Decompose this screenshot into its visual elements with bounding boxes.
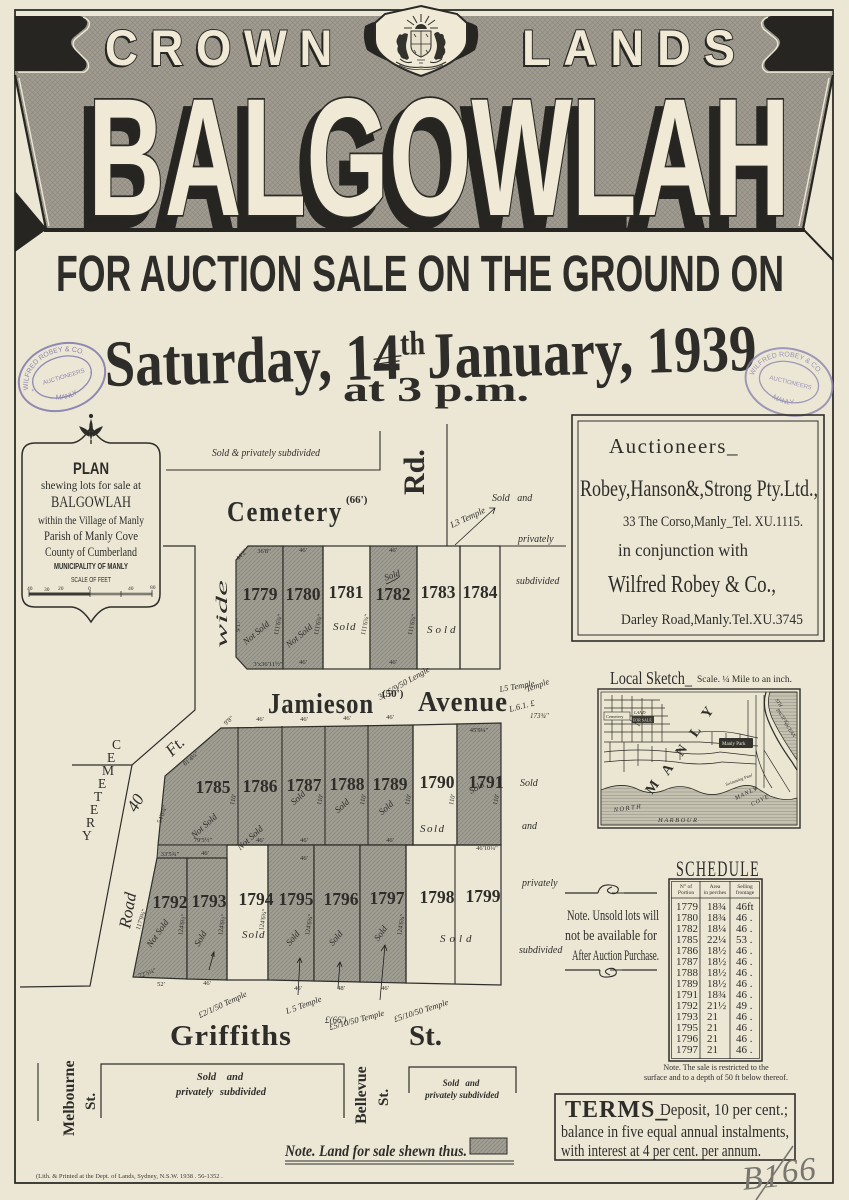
svg-text:Local Sketch_: Local Sketch_ <box>610 668 693 688</box>
svg-text:SCALE OF FEET: SCALE OF FEET <box>71 575 111 584</box>
svg-text:Parish of Manly Cove: Parish of Manly Cove <box>44 529 138 543</box>
svg-text:frontage: frontage <box>736 889 755 896</box>
svg-text:Jamieson: Jamieson <box>268 689 374 720</box>
svg-text:and: and <box>522 821 538 832</box>
svg-text:Manly Park: Manly Park <box>722 742 746 747</box>
svg-text:Robey,Hanson&,Strong Pty.Ltd.,: Robey,Hanson&,Strong Pty.Ltd., <box>580 476 818 501</box>
svg-text:46': 46' <box>343 715 351 722</box>
svg-text:1797: 1797 <box>370 888 405 908</box>
svg-text:1785: 1785 <box>196 777 231 797</box>
svg-text:privately: privately <box>517 534 554 545</box>
svg-text:46 .: 46 . <box>736 1044 753 1056</box>
svg-text:Rd.: Rd. <box>398 449 431 495</box>
svg-text:Scale. ¼ Mile to an inch.: Scale. ¼ Mile to an inch. <box>697 675 792 685</box>
svg-text:privately subdivided: privately subdivided <box>175 1087 267 1098</box>
svg-text:1782: 1782 <box>376 584 411 604</box>
svg-text:1780: 1780 <box>286 584 321 604</box>
svg-text:at 3 p.m.: at 3 p.m. <box>343 370 529 409</box>
svg-text:Wilfred Robey & Co.,: Wilfred Robey & Co., <box>608 572 776 598</box>
svg-text:45'9¼": 45'9¼" <box>470 727 489 734</box>
svg-text:46': 46' <box>381 985 389 992</box>
svg-text:County of Cumberland: County of Cumberland <box>45 545 138 559</box>
svg-text:privately: privately <box>521 878 558 889</box>
svg-text:3'x36'11½": 3'x36'11½" <box>253 661 282 668</box>
svg-text:TERMS_: TERMS_ <box>565 1097 668 1123</box>
svg-text:(66'): (66') <box>346 494 368 506</box>
svg-text:N° of: N° of <box>680 883 692 890</box>
svg-text:Sold and: Sold and <box>443 1078 480 1088</box>
svg-text:Sold: Sold <box>333 621 357 633</box>
svg-text:Darley Road,Manly.Tel.XU.3745: Darley Road,Manly.Tel.XU.3745 <box>621 612 803 628</box>
svg-text:46'10¼": 46'10¼" <box>476 845 498 852</box>
svg-text:173¾": 173¾" <box>530 712 549 720</box>
svg-text:BALGOWLAH: BALGOWLAH <box>88 64 790 251</box>
svg-text:1789: 1789 <box>373 774 408 794</box>
svg-text:1794: 1794 <box>239 889 274 909</box>
svg-text:Note. Unsold lots will: Note. Unsold lots will <box>567 908 659 924</box>
svg-text:wide: wide <box>214 580 231 648</box>
svg-text:Melbourne: Melbourne <box>61 1060 78 1136</box>
svg-text:Sold: Sold <box>520 778 539 789</box>
svg-text:79'5½": 79'5½" <box>194 837 213 844</box>
svg-text:Cemetery: Cemetery <box>606 714 624 719</box>
svg-text:Cemetery: Cemetery <box>227 497 343 528</box>
svg-text:Portion: Portion <box>678 890 694 896</box>
svg-text:40: 40 <box>128 586 134 592</box>
svg-text:46': 46' <box>389 547 397 554</box>
svg-text:1781: 1781 <box>329 582 364 602</box>
svg-text:shewing lots for sale at: shewing lots for sale at <box>41 480 142 492</box>
svg-text:with interest at 4 per cent. p: with interest at 4 per cent. per annum. <box>561 1141 761 1160</box>
svg-text:46': 46' <box>300 855 308 862</box>
svg-text:SCHEDULE: SCHEDULE <box>676 856 760 881</box>
svg-text:0: 0 <box>88 586 91 592</box>
svg-text:46': 46' <box>300 837 308 844</box>
svg-text:Sold: Sold <box>440 933 476 945</box>
svg-text:1792: 1792 <box>153 892 188 912</box>
svg-text:46': 46' <box>203 980 211 987</box>
svg-text:within the Village of Manly: within the Village of Manly <box>38 515 144 527</box>
svg-text:1799: 1799 <box>466 886 501 906</box>
svg-text:33 The Corso,Manly_Tel. XU.111: 33 The Corso,Manly_Tel. XU.1115. <box>623 514 803 530</box>
svg-text:46': 46' <box>294 985 302 992</box>
svg-text:MUNICIPALITY OF MANLY: MUNICIPALITY OF MANLY <box>54 562 128 571</box>
svg-text:Griffiths: Griffiths <box>170 1020 292 1052</box>
svg-text:80: 80 <box>150 585 156 591</box>
svg-text:in perches: in perches <box>704 890 726 896</box>
svg-text:1786: 1786 <box>243 776 278 796</box>
svg-text:1793: 1793 <box>192 891 227 911</box>
svg-text:46': 46' <box>256 716 264 723</box>
svg-text:in conjunction with: in conjunction with <box>618 540 748 560</box>
svg-text:46': 46' <box>299 547 307 554</box>
svg-text:After Auction Purchase.: After Auction Purchase. <box>572 948 659 964</box>
svg-text:Sold: Sold <box>420 823 446 835</box>
svg-text:46': 46' <box>256 837 264 844</box>
svg-text:St.: St. <box>376 1089 392 1106</box>
svg-text:BALGOWLAH: BALGOWLAH <box>51 494 131 511</box>
svg-text:46': 46' <box>389 659 397 666</box>
svg-text:St.: St. <box>83 1093 99 1110</box>
svg-text:Sold & privately subdivided: Sold & privately subdivided <box>212 448 321 459</box>
svg-text:LAND: LAND <box>633 710 646 715</box>
svg-text:1797: 1797 <box>676 1044 699 1056</box>
svg-text:46': 46' <box>386 714 394 721</box>
svg-text:balance in five equal annual i: balance in five equal annual instalments… <box>561 1122 789 1141</box>
svg-text:Auctioneers_: Auctioneers_ <box>609 434 739 458</box>
svg-text:HARBOUR: HARBOUR <box>657 817 698 824</box>
svg-text:21: 21 <box>707 1044 718 1056</box>
svg-text:30: 30 <box>44 587 50 593</box>
svg-text:not be available for: not be available for <box>565 928 657 944</box>
svg-text:privately subdivided: privately subdivided <box>424 1090 499 1100</box>
svg-text:1790: 1790 <box>420 772 455 792</box>
svg-text:1787: 1787 <box>287 775 322 795</box>
svg-text:Avenue: Avenue <box>418 687 508 718</box>
svg-text:46': 46' <box>201 850 209 857</box>
svg-text:1784: 1784 <box>463 582 498 602</box>
svg-text:Y: Y <box>82 828 92 843</box>
svg-text:PLAN: PLAN <box>73 459 109 478</box>
svg-text:46': 46' <box>300 716 308 723</box>
svg-text:FOR SALE: FOR SALE <box>633 718 652 723</box>
svg-text:Bellevue: Bellevue <box>353 1066 370 1124</box>
svg-text:9'17": 9'17" <box>235 618 242 632</box>
svg-text:Note. The sale is restricted t: Note. The sale is restricted to the <box>663 1063 769 1072</box>
svg-text:46': 46' <box>386 837 394 844</box>
svg-text:FOR AUCTION SALE ON THE GROUND: FOR AUCTION SALE ON THE GROUND ON <box>56 246 784 303</box>
svg-text:Deposit, 10 per cent.;: Deposit, 10 per cent.; <box>660 1100 788 1119</box>
svg-text:subdivided: subdivided <box>519 945 563 956</box>
svg-text:1798: 1798 <box>420 887 455 907</box>
svg-text:1788: 1788 <box>330 774 365 794</box>
svg-text:subdivided: subdivided <box>516 576 560 587</box>
svg-text:surface and to a depth of 50 f: surface and to a depth of 50 ft below th… <box>644 1073 788 1082</box>
svg-text:36'8": 36'8" <box>257 548 271 555</box>
svg-text:1783: 1783 <box>421 582 456 602</box>
svg-text:£(66'): £(66') <box>325 1015 346 1025</box>
svg-text:52': 52' <box>157 981 165 988</box>
svg-text:1795: 1795 <box>279 889 314 909</box>
svg-text:Sold and: Sold and <box>197 1072 244 1083</box>
svg-text:Sold: Sold <box>427 624 459 636</box>
svg-text:48': 48' <box>337 985 345 992</box>
svg-text:40: 40 <box>27 586 33 592</box>
svg-text:46': 46' <box>299 659 307 666</box>
svg-text:Note. Land for sale shewn thus: Note. Land for sale shewn thus. <box>284 1143 467 1160</box>
svg-text:1779: 1779 <box>243 584 278 604</box>
svg-text:33'5¾": 33'5¾" <box>161 851 180 858</box>
svg-text:Sold and: Sold and <box>492 493 533 504</box>
svg-text:1796: 1796 <box>324 889 359 909</box>
svg-text:20: 20 <box>58 586 64 592</box>
svg-text:(Lith. & Printed at the Dept.: (Lith. & Printed at the Dept. of Lands, … <box>36 1173 223 1180</box>
svg-text:St.: St. <box>409 1020 442 1052</box>
